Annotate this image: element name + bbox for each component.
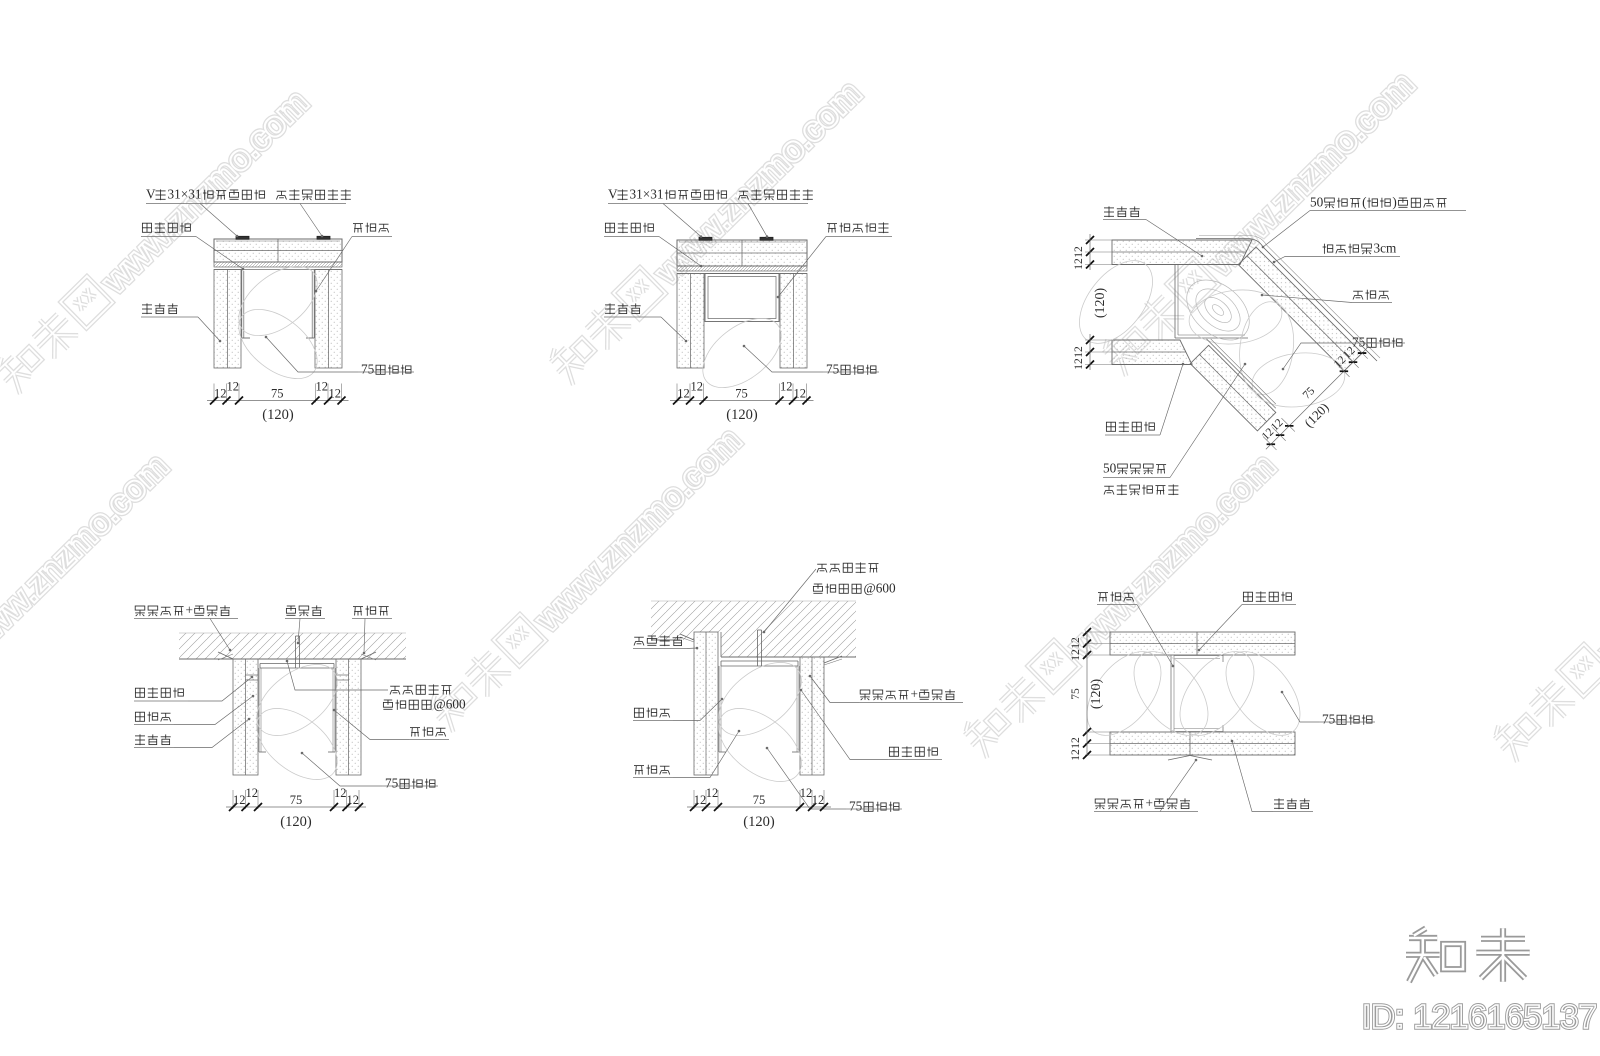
svg-text:75: 75 — [361, 362, 375, 377]
svg-text:75: 75 — [849, 799, 863, 814]
svg-text:(120): (120) — [743, 814, 775, 830]
svg-text:75: 75 — [1322, 712, 1336, 727]
svg-text:12: 12 — [227, 380, 240, 394]
svg-text:31×31: 31×31 — [168, 187, 202, 202]
svg-text:75: 75 — [753, 793, 766, 807]
svg-text:(120): (120) — [726, 407, 758, 423]
svg-text:75: 75 — [271, 387, 284, 401]
svg-text:12: 12 — [329, 387, 342, 401]
svg-text:12: 12 — [1073, 358, 1085, 370]
svg-text:V: V — [146, 187, 156, 202]
svg-text:50: 50 — [1310, 195, 1324, 210]
svg-text:12: 12 — [1070, 637, 1082, 649]
svg-text:12: 12 — [691, 380, 704, 394]
svg-text:(120): (120) — [1089, 679, 1104, 710]
svg-text:12: 12 — [812, 793, 825, 807]
svg-text:12: 12 — [1073, 258, 1085, 270]
svg-text:@600: @600 — [864, 581, 896, 596]
svg-text:+: + — [911, 687, 918, 702]
svg-text:12: 12 — [214, 387, 227, 401]
svg-text:12: 12 — [334, 786, 347, 800]
svg-text:12: 12 — [677, 387, 690, 401]
svg-text:75: 75 — [385, 776, 399, 791]
svg-text:50: 50 — [1103, 461, 1117, 476]
svg-text:+: + — [1146, 796, 1153, 811]
svg-text:V: V — [608, 187, 618, 202]
svg-text:75: 75 — [826, 362, 840, 377]
svg-text:75: 75 — [1070, 688, 1082, 700]
svg-text:12: 12 — [1073, 346, 1085, 358]
svg-text:12: 12 — [233, 793, 246, 807]
svg-text:75: 75 — [290, 793, 303, 807]
svg-text:12: 12 — [794, 387, 807, 401]
svg-text:12: 12 — [316, 380, 329, 394]
svg-text:(120): (120) — [1093, 288, 1108, 319]
svg-text:31×31: 31×31 — [630, 187, 664, 202]
svg-text:12: 12 — [1070, 749, 1082, 761]
svg-text:@600: @600 — [434, 697, 466, 712]
svg-text:12: 12 — [347, 793, 360, 807]
svg-text:): ) — [1392, 195, 1396, 210]
svg-text:75: 75 — [1352, 335, 1366, 350]
svg-text:12: 12 — [780, 380, 793, 394]
svg-text:12: 12 — [1070, 737, 1082, 749]
svg-text:12: 12 — [706, 786, 719, 800]
svg-text:12: 12 — [694, 793, 707, 807]
svg-text:(120): (120) — [262, 407, 294, 423]
svg-text:+: + — [186, 603, 193, 618]
svg-text:12: 12 — [1070, 649, 1082, 661]
svg-text:75: 75 — [735, 387, 748, 401]
svg-text:12: 12 — [246, 786, 259, 800]
svg-text:ID: 1216165137: ID: 1216165137 — [1362, 998, 1597, 1035]
svg-text:3cm: 3cm — [1374, 241, 1398, 256]
svg-text:12: 12 — [1073, 246, 1085, 258]
svg-text:(: ( — [1362, 195, 1366, 210]
svg-text:(120): (120) — [280, 814, 312, 830]
svg-text:12: 12 — [800, 786, 813, 800]
